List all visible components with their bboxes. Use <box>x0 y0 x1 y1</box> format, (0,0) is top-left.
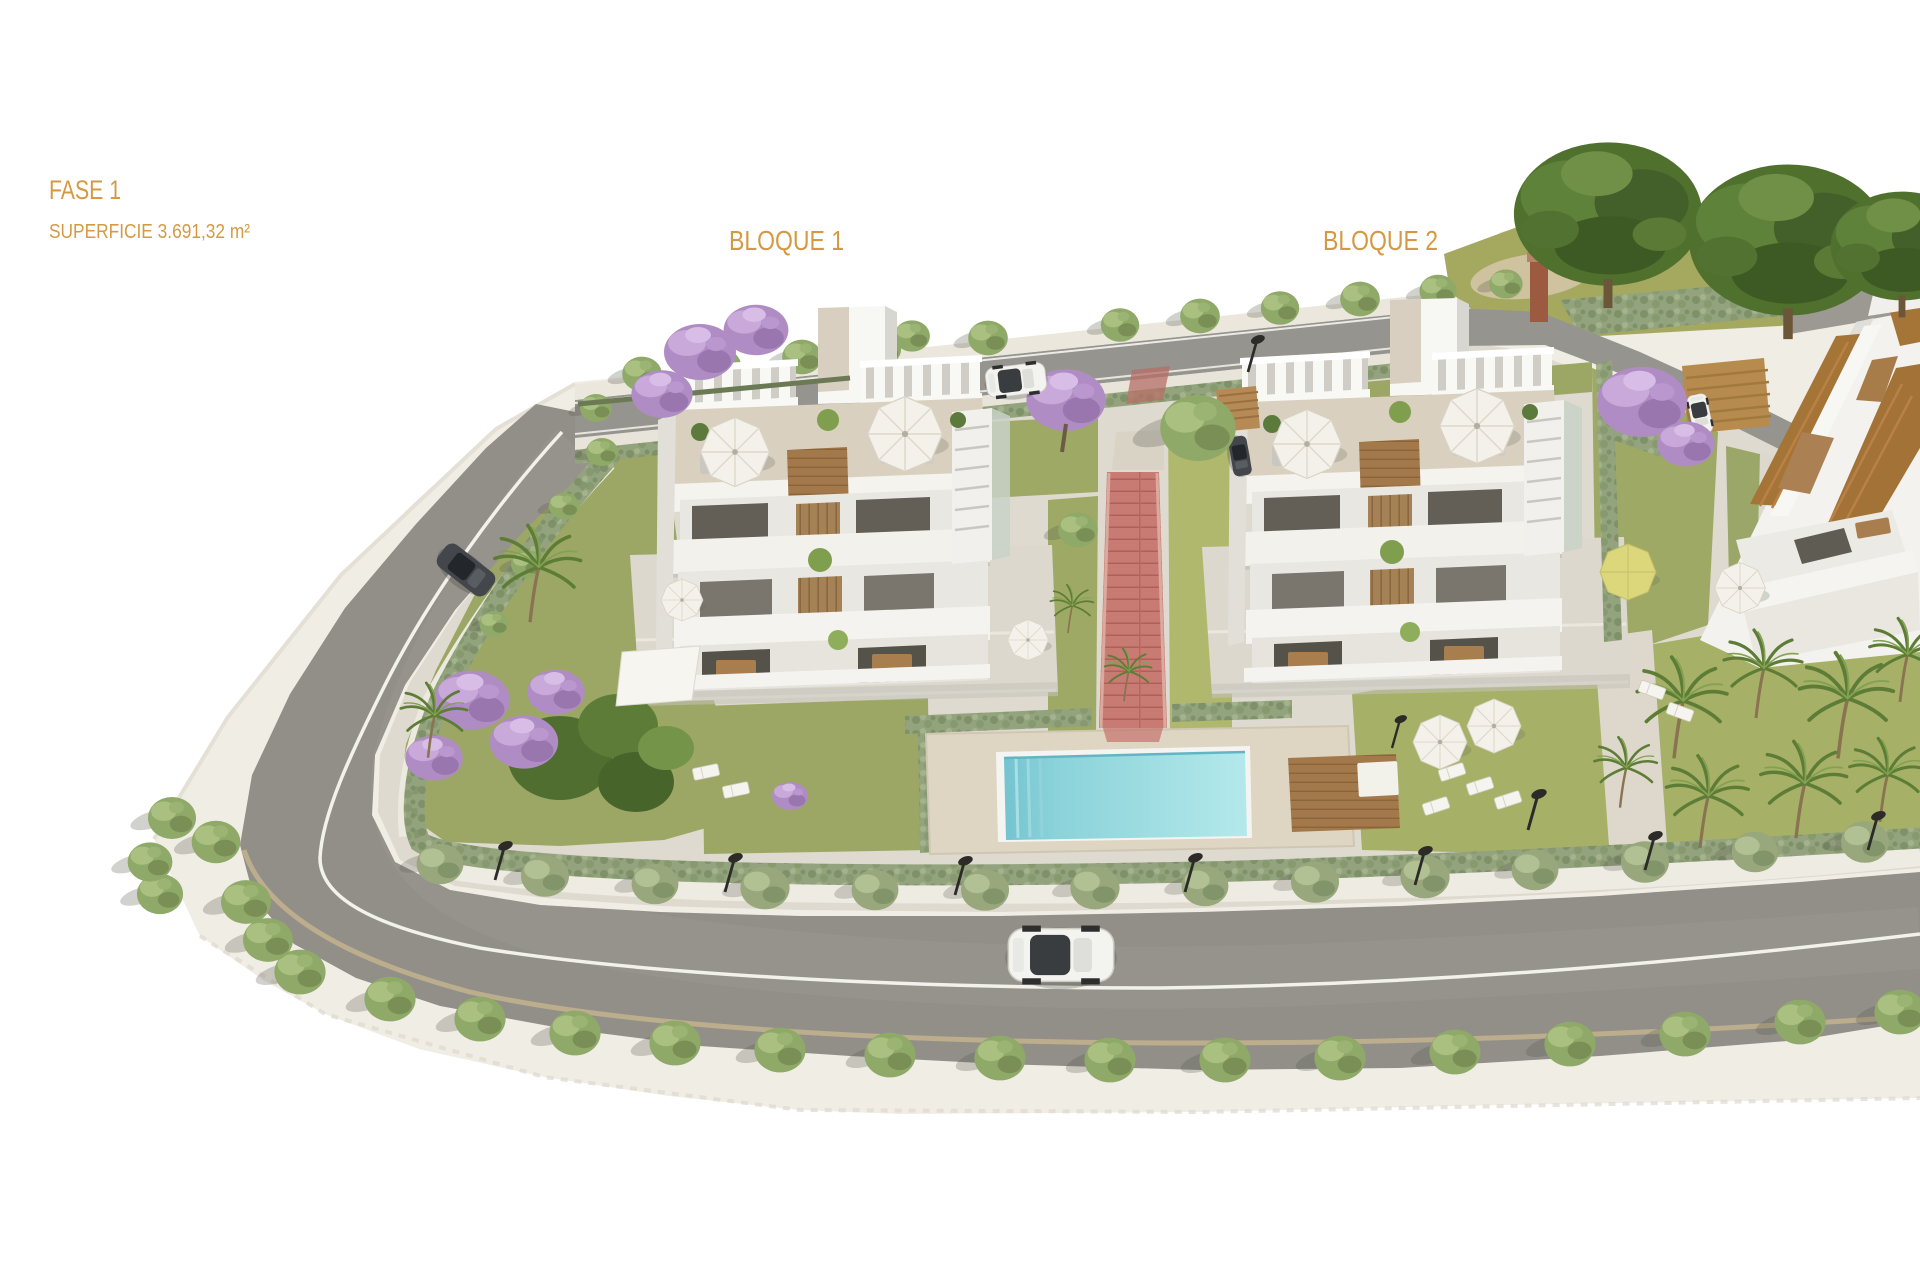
svg-text:BLOQUE 2: BLOQUE 2 <box>1323 225 1438 256</box>
svg-text:SUPERFICIE 3.691,32 m²: SUPERFICIE 3.691,32 m² <box>49 221 250 243</box>
svg-text:BLOQUE 1: BLOQUE 1 <box>729 225 844 256</box>
svg-text:FASE 1: FASE 1 <box>49 175 121 205</box>
